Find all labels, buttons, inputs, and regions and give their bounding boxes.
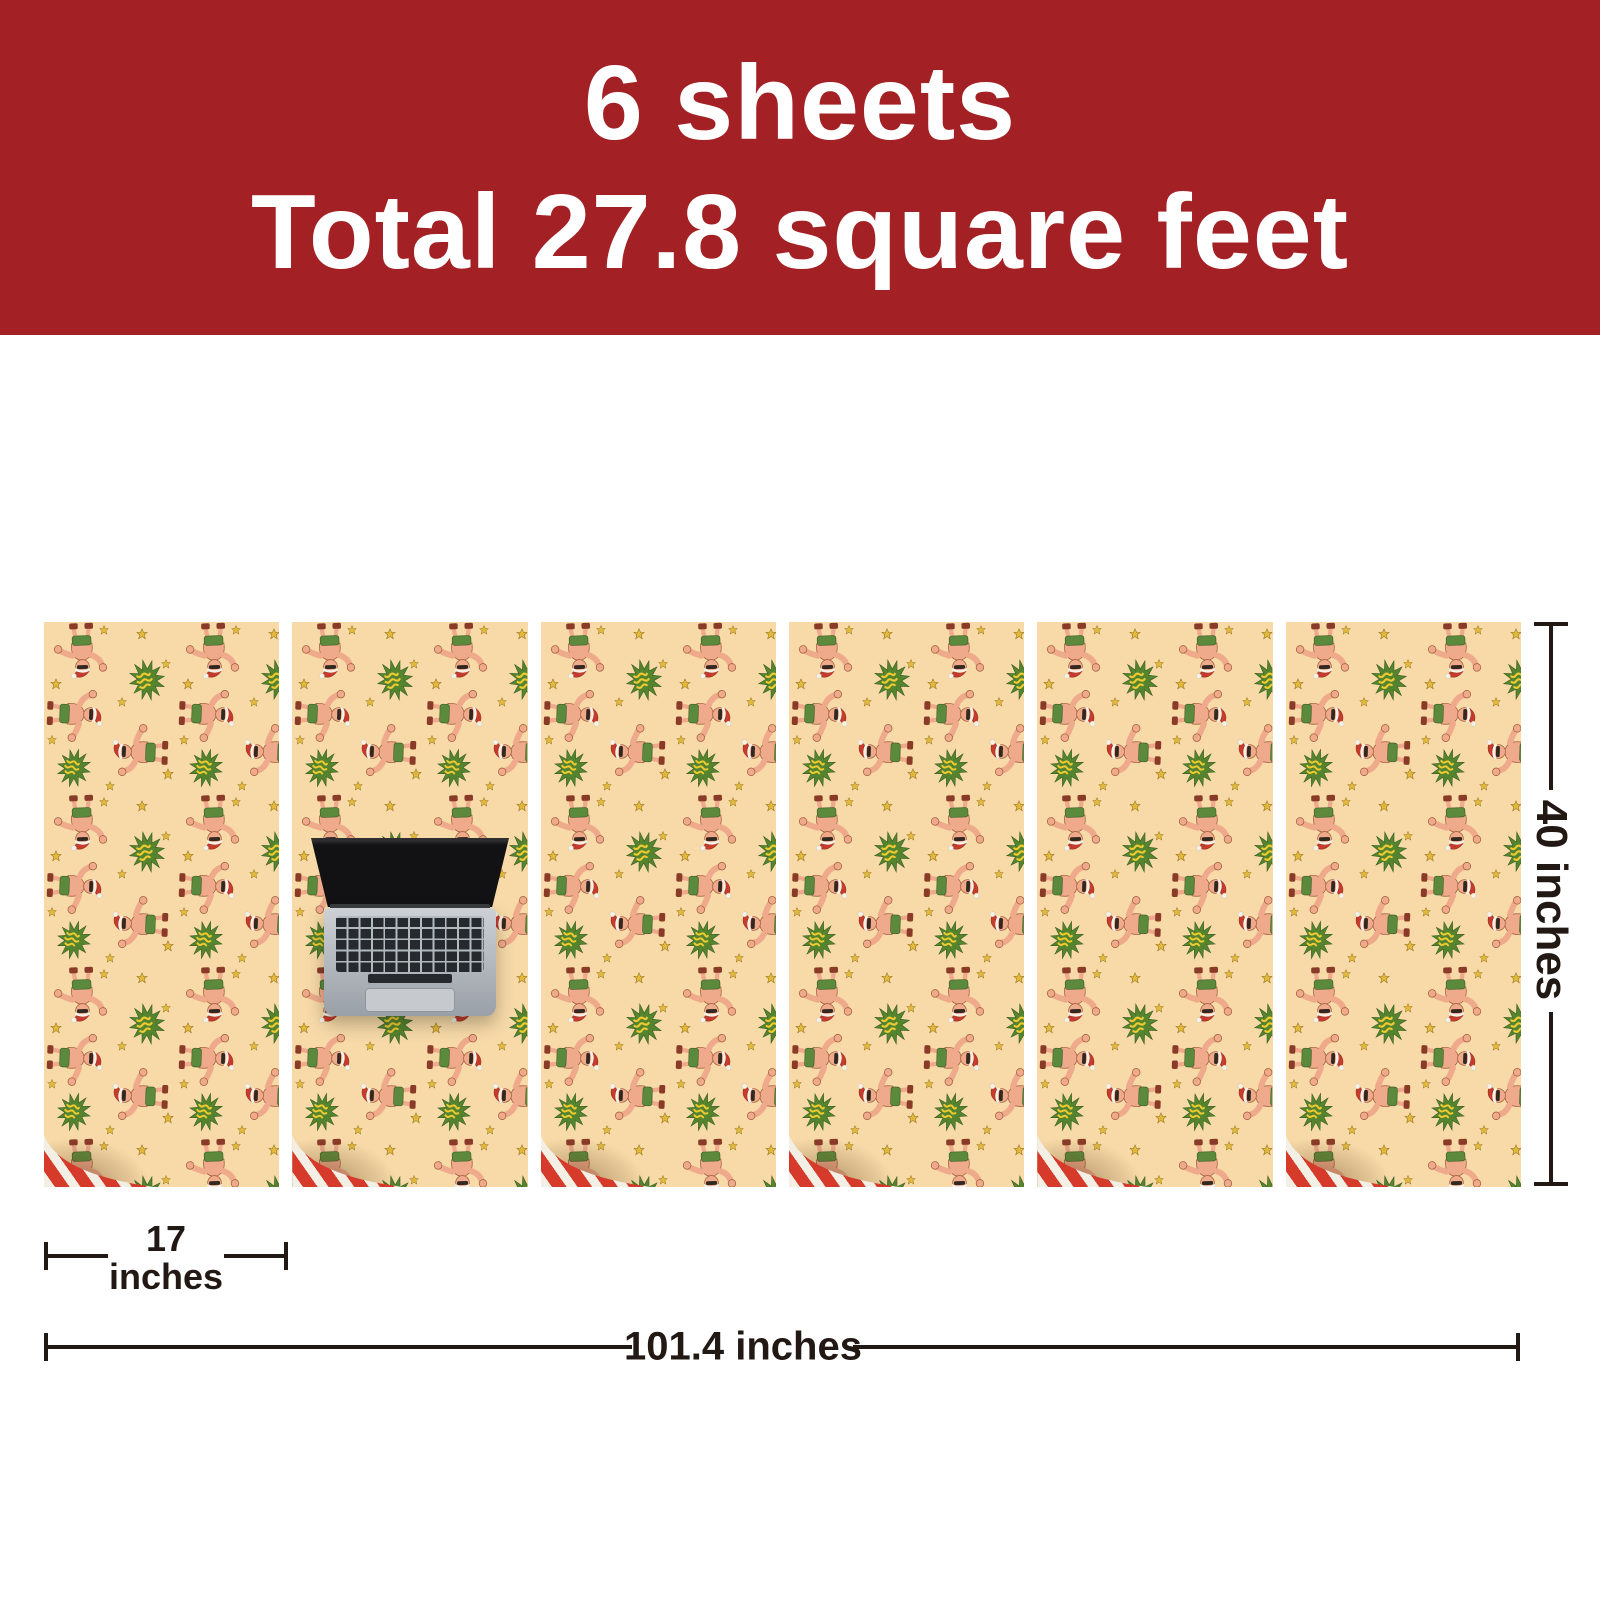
paper-pattern <box>541 622 776 1187</box>
laptop-spacebar <box>368 974 452 983</box>
width-dim-label-unit: inches <box>109 1256 223 1298</box>
banner-total-area: Total 27.8 square feet <box>251 175 1349 289</box>
width-dim-cap-right <box>284 1242 288 1270</box>
paper-pattern <box>1286 622 1521 1187</box>
wrapping-paper-sheet <box>1037 622 1272 1187</box>
width-dim-line-left <box>44 1254 108 1258</box>
height-dim-line-top <box>1549 622 1553 790</box>
width-dim-label-value: 17 <box>146 1218 186 1260</box>
wrapping-paper-sheet <box>541 622 776 1187</box>
laptop-base <box>324 908 496 1016</box>
total-length-line-left <box>44 1345 632 1349</box>
total-length-label: 101.4 inches <box>624 1325 862 1370</box>
height-dim-line-bottom <box>1549 1012 1553 1184</box>
paper-pattern <box>789 622 1024 1187</box>
laptop-screen <box>311 838 509 907</box>
header-banner: 6 sheets Total 27.8 square feet <box>0 0 1600 335</box>
paper-pattern <box>1037 622 1272 1187</box>
sheet-row <box>44 622 1521 1187</box>
wrapping-paper-sheet <box>789 622 1024 1187</box>
banner-sheet-count: 6 sheets <box>584 46 1016 160</box>
laptop-keyboard <box>336 916 484 972</box>
laptop-trackpad <box>365 988 455 1012</box>
laptop-image <box>308 838 512 1018</box>
product-image: 6 sheets Total 27.8 square feet <box>0 0 1600 1600</box>
width-dim-line-right <box>224 1254 288 1258</box>
total-length-cap-right <box>1516 1333 1520 1361</box>
paper-pattern <box>44 622 279 1187</box>
total-length-line-right <box>853 1345 1520 1349</box>
height-dim-cap-bottom <box>1534 1182 1568 1186</box>
height-dim-label: 40 inches <box>1526 800 1576 1001</box>
wrapping-paper-sheet <box>1286 622 1521 1187</box>
wrapping-paper-sheet <box>44 622 279 1187</box>
